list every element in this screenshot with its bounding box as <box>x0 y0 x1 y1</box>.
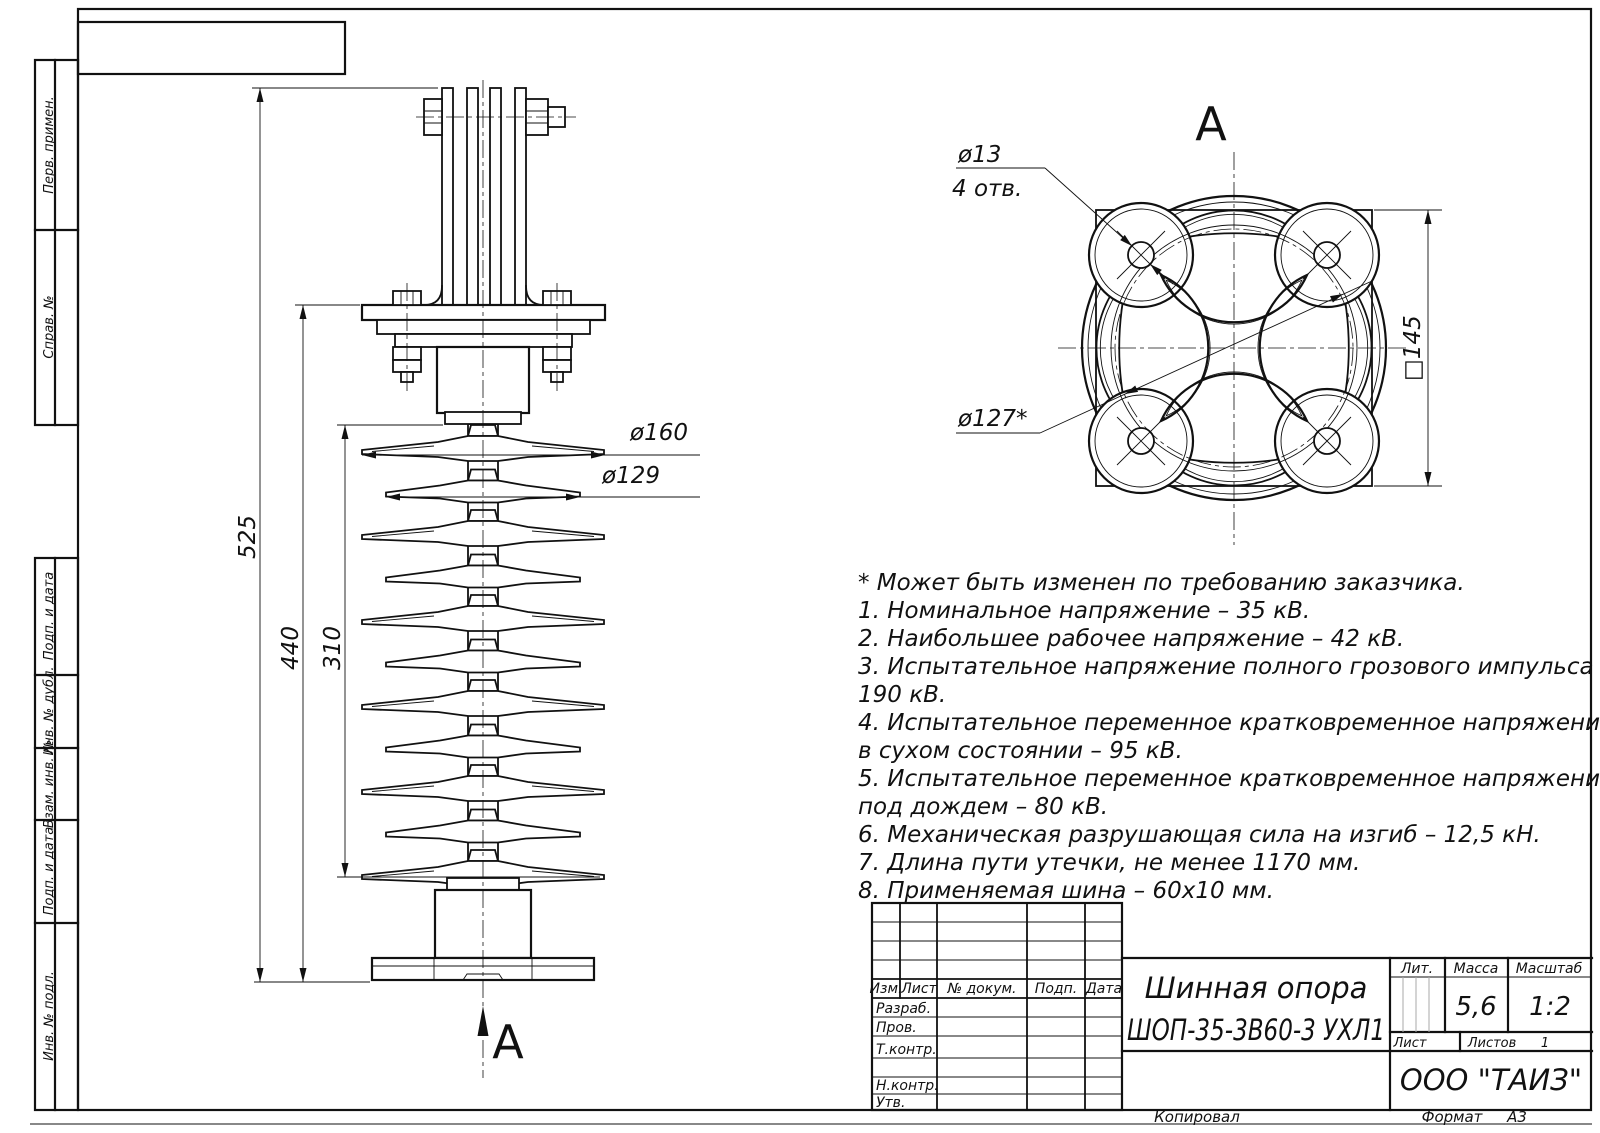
top-view: А <box>952 97 1442 545</box>
front-view: А 525 440 310 <box>235 80 700 1078</box>
dim-d129-text: ø129 <box>601 463 660 489</box>
row-nkontr: Н.контр. <box>876 1078 939 1094</box>
col-doc: № докум. <box>946 981 1016 997</box>
sheet-label: Лист <box>1393 1036 1427 1051</box>
sidebar-label-inv-podl: Инв. № подл. <box>42 971 57 1061</box>
row-tkontr: Т.контр. <box>876 1042 937 1058</box>
sheets-label: Листов <box>1467 1036 1517 1051</box>
technical-notes: * Может быть изменен по требованию заказ… <box>858 570 1600 904</box>
left-sidebar: Перв. примен. Справ. № Подп. и дата Инв.… <box>35 60 78 1110</box>
dim-d13-text: ø13 <box>957 142 1001 168</box>
dim-440-text: 440 <box>278 626 304 670</box>
dim-145-text: □145 <box>1400 315 1426 381</box>
sidebar-label-vzam-inv: Взам. инв. № <box>42 740 57 828</box>
note-line-11: 8. Применяемая шина – 60x10 мм. <box>858 878 1274 904</box>
drawing-canvas: Перв. примен. Справ. № Подп. и дата Инв.… <box>0 0 1600 1133</box>
note-line-4: 190 кВ. <box>858 682 946 708</box>
col-list: Лист <box>900 981 937 997</box>
dim-d160-text: ø160 <box>629 420 688 446</box>
company-name: ООО "ТАИЗ" <box>1400 1063 1582 1097</box>
note-line-10: 7. Длина пути утечки, не менее 1170 мм. <box>858 850 1360 876</box>
format-value: А3 <box>1506 1108 1527 1126</box>
note-line-6: в сухом состоянии – 95 кВ. <box>858 738 1183 764</box>
note-line-9: 6. Механическая разрушающая сила на изги… <box>858 822 1541 848</box>
dim-525-text: 525 <box>235 515 261 559</box>
col-sign: Подп. <box>1035 981 1077 997</box>
sheets-value: 1 <box>1541 1036 1549 1051</box>
top-left-stamp-box <box>78 22 345 74</box>
dim-holes-text: 4 отв. <box>952 176 1022 202</box>
row-prov: Пров. <box>876 1020 917 1036</box>
scale-label: Масштаб <box>1516 961 1583 977</box>
top-view-label: А <box>1195 97 1227 151</box>
drawing-sheet: Перв. примен. Справ. № Подп. и дата Инв.… <box>0 0 1600 1133</box>
copied-label: Копировал <box>1154 1108 1240 1126</box>
note-line-7: 5. Испытательное переменное кратковремен… <box>858 766 1600 792</box>
dim-440: 440 <box>278 305 360 982</box>
note-line-5: 4. Испытательное переменное кратковремен… <box>858 710 1600 736</box>
dim-145: □145 <box>1374 210 1442 486</box>
view-a-direction-arrow: А <box>478 1006 525 1069</box>
mass-value: 5,6 <box>1455 992 1496 1022</box>
doc-title-line2: ШОП-35-3В60-3 УХЛ1 <box>1127 1013 1385 1047</box>
view-arrow-label: А <box>492 1015 524 1069</box>
note-line-0: * Может быть изменен по требованию заказ… <box>858 570 1465 596</box>
sheet-frame <box>30 9 1592 1124</box>
row-utv: Утв. <box>876 1095 905 1111</box>
mass-label: Масса <box>1454 961 1499 977</box>
lit-label: Лит. <box>1400 961 1433 977</box>
sidebar-label-perv-primen: Перв. примен. <box>42 96 57 194</box>
col-izm: Изм. <box>870 981 903 997</box>
row-razrab: Разраб. <box>876 1001 931 1017</box>
dim-d127-text: ø127* <box>957 406 1027 432</box>
sidebar-label-sprav-no: Справ. № <box>42 295 57 358</box>
note-line-8: под дождем – 80 кВ. <box>858 794 1108 820</box>
note-line-3: 3. Испытательное напряжение полного гроз… <box>858 654 1600 680</box>
sidebar-label-podp-data-2: Подп. и дата <box>42 827 57 916</box>
sidebar-label-podp-data-1: Подп. и дата <box>42 572 57 661</box>
title-block: Изм. Лист № докум. Подп. Дата Разраб. Пр… <box>870 903 1592 1111</box>
scale-value: 1:2 <box>1529 992 1571 1022</box>
format-label: Формат <box>1422 1108 1484 1126</box>
note-line-2: 2. Наибольшее рабочее напряжение – 42 кВ… <box>858 626 1404 652</box>
doc-title-line1: Шинная опора <box>1145 971 1368 1005</box>
dim-310-text: 310 <box>320 626 346 670</box>
note-line-1: 1. Номинальное напряжение – 35 кВ. <box>858 598 1310 624</box>
col-date: Дата <box>1085 981 1122 997</box>
